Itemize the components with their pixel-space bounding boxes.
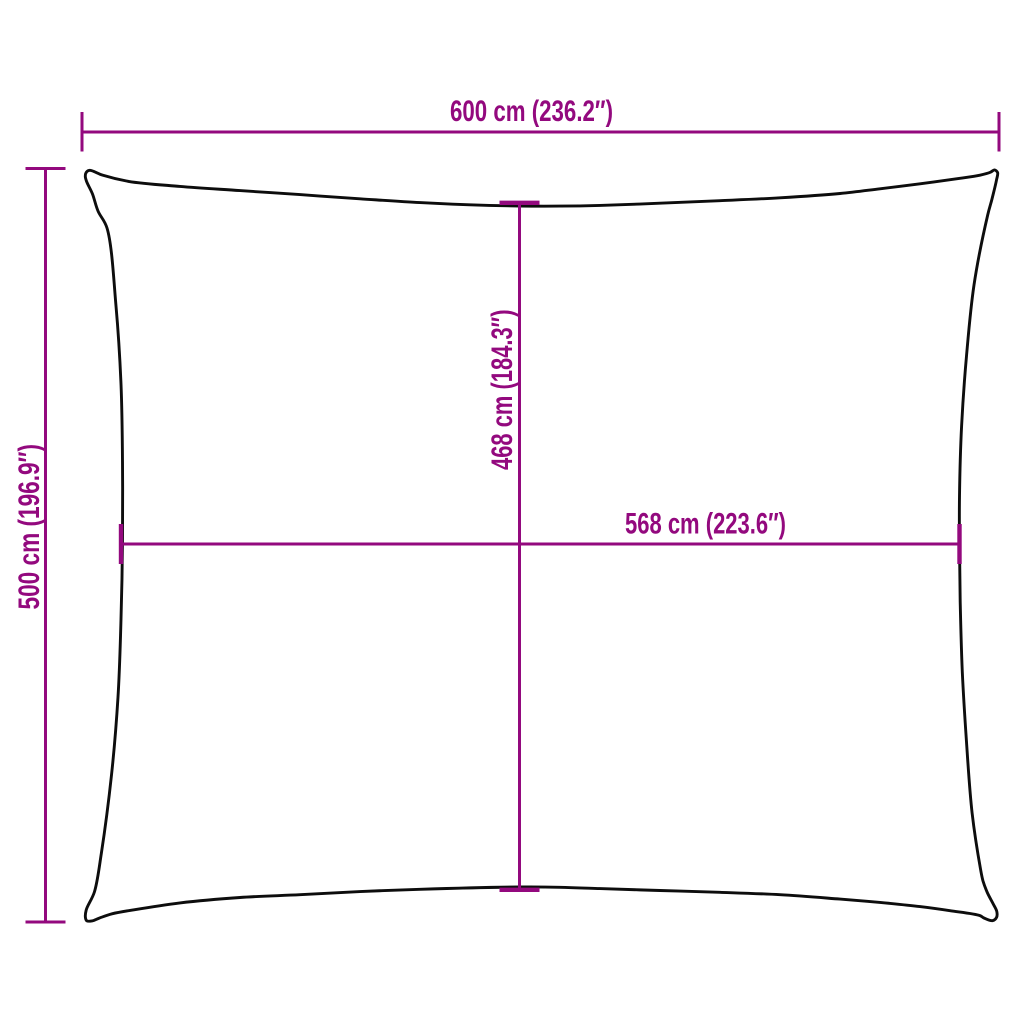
svg-text:500 cm (196.9″): 500 cm (196.9″) <box>13 444 46 610</box>
svg-text:600 cm (236.2″): 600 cm (236.2″) <box>450 95 613 128</box>
svg-text:568 cm (223.6″): 568 cm (223.6″) <box>625 508 786 541</box>
svg-text:468 cm (184.3″): 468 cm (184.3″) <box>486 310 519 471</box>
